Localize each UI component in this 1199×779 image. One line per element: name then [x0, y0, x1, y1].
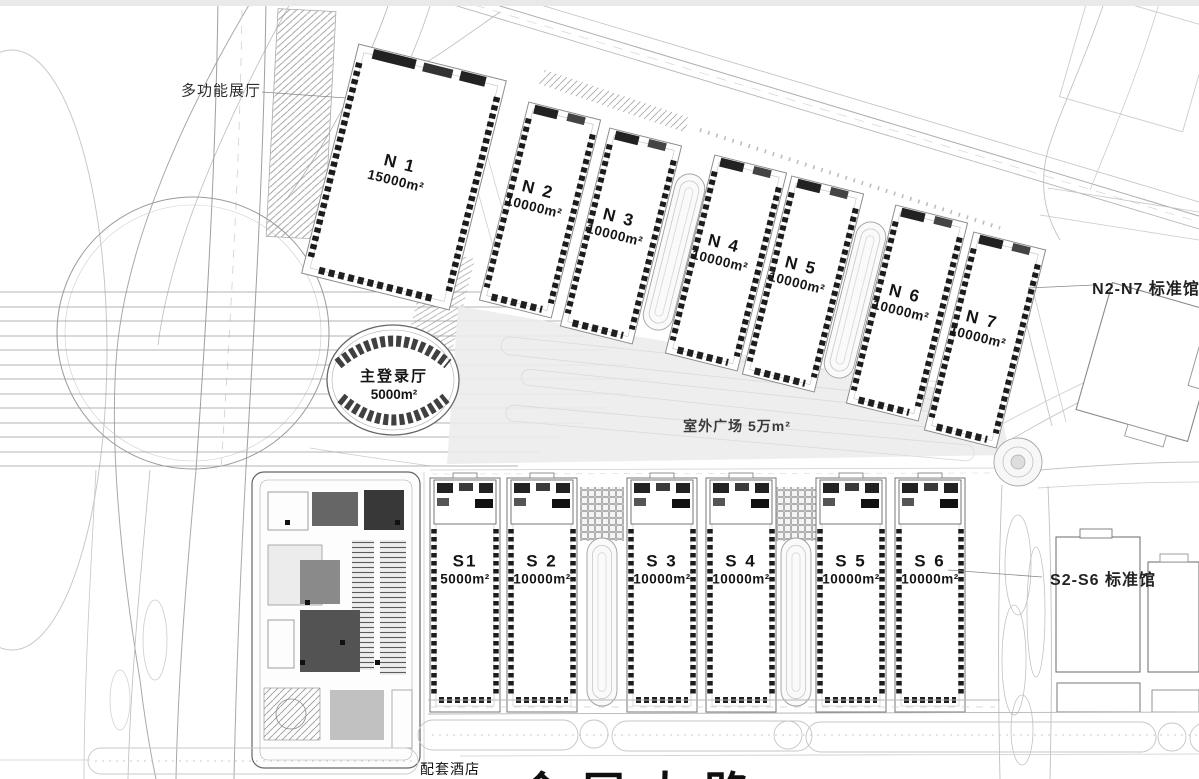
bottom-road-name: 会展大路	[518, 758, 766, 779]
hall-s4	[706, 473, 776, 712]
hall-s2-label: S 2 10000m²	[513, 552, 571, 589]
hall-s6	[895, 473, 965, 712]
north-standard-halls-label: N2-N7 标准馆	[1092, 275, 1199, 299]
hall-s1	[430, 473, 500, 712]
top-border-strip	[0, 0, 1199, 6]
hotel-complex	[252, 472, 420, 768]
site-plan: 多功能展厅 N 1 15000m² N 2 10000m² N 3 10000m…	[0, 0, 1199, 779]
hotel-label: 配套酒店	[420, 759, 480, 779]
multi-function-hall-label: 多功能展厅	[181, 80, 261, 101]
hall-s2	[507, 473, 577, 712]
site-plan-drawing	[0, 0, 1199, 779]
hall-s6-label: S 6 10000m²	[901, 552, 959, 589]
roundabout	[994, 438, 1042, 486]
hall-s3-label: S 3 10000m²	[633, 552, 691, 589]
main-login-hall-label: 主登录厅 5000m²	[360, 368, 428, 404]
hall-s4-label: S 4 10000m²	[712, 552, 770, 589]
outdoor-plaza-label: 室外广场 5万m²	[683, 416, 791, 436]
right-side-buildings	[1056, 0, 1199, 712]
hall-s5	[816, 473, 886, 712]
hall-s3	[627, 473, 697, 712]
south-halls	[430, 473, 965, 712]
landscape-strip	[1002, 515, 1045, 765]
south-standard-halls-label: S2-S6 标准馆	[1050, 566, 1156, 590]
hall-s1-label: S1 5000m²	[440, 552, 490, 589]
hall-s5-label: S 5 10000m²	[822, 552, 880, 589]
